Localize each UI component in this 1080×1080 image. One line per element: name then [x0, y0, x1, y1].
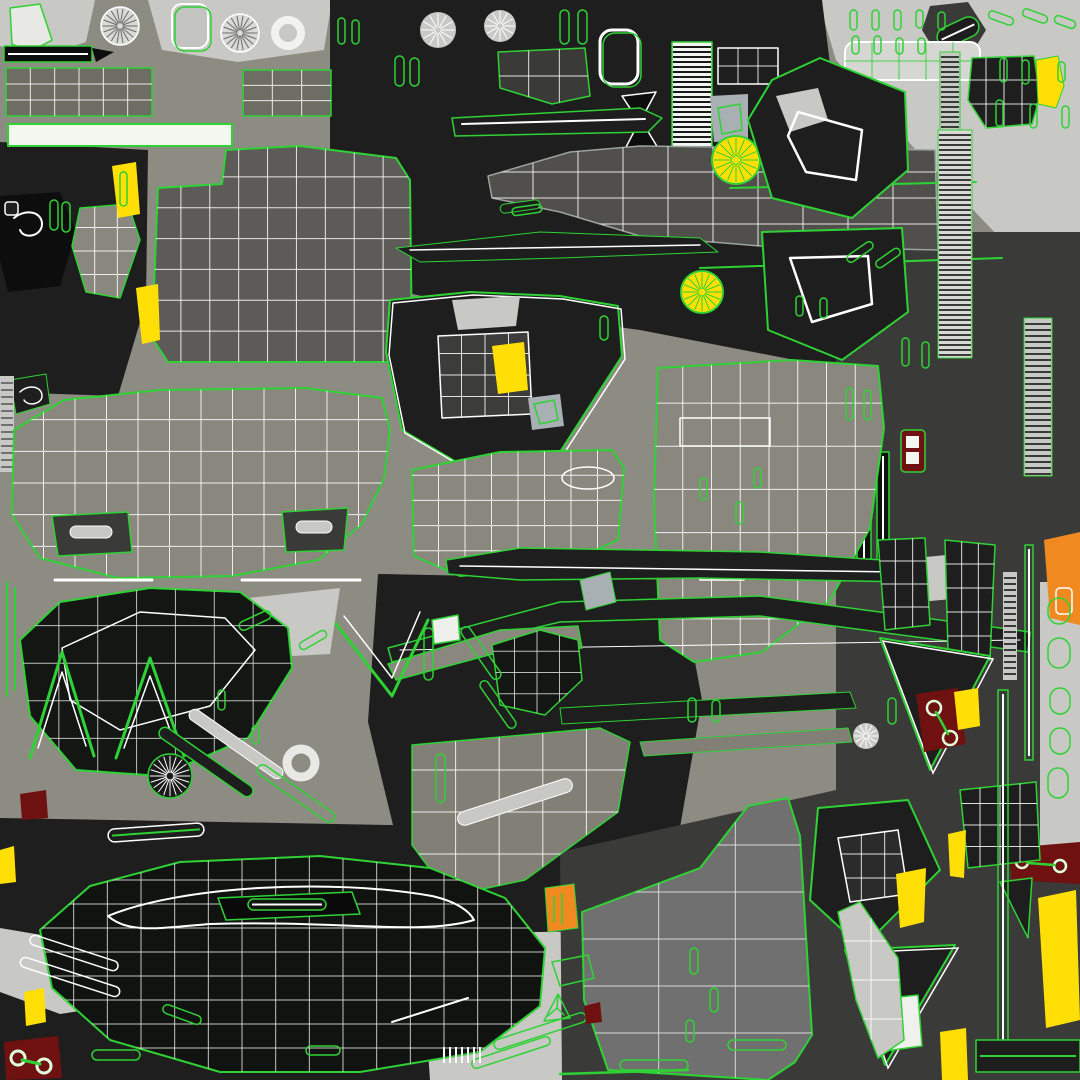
rounded-rect-island [172, 4, 211, 51]
pocket-pill-2 [296, 521, 332, 533]
uv-atlas-svg [0, 0, 1080, 1080]
red-window-2 [906, 452, 919, 464]
kite-grid-c [960, 782, 1040, 868]
lemon-disc-2 [681, 271, 723, 313]
ladder-right-big [938, 130, 972, 358]
ladder-left-edge [0, 376, 14, 472]
red-bone-corner [4, 1036, 62, 1080]
disc-kite [853, 723, 879, 749]
hood-island [40, 856, 545, 1072]
bumper-strip-2 [243, 70, 331, 116]
hood-slot-pill [248, 899, 326, 910]
gray-blob-window [452, 296, 520, 330]
yellow-small-br [948, 830, 966, 878]
starburst-blob-2 [484, 10, 516, 42]
uv-texture-atlas [0, 0, 1080, 1080]
starburst-blob-1 [420, 12, 456, 48]
white-blob-small [432, 615, 460, 644]
grid-quad-b [945, 540, 995, 660]
grid-quad-a [878, 538, 930, 630]
square-pill [5, 202, 18, 215]
yellow-blob-kite [954, 688, 980, 730]
bumper-strip-1 [6, 68, 152, 116]
panel-box-top [718, 48, 778, 84]
wheel-disc-1 [101, 7, 139, 45]
red-window-1 [906, 436, 919, 448]
wheel-disc-3 [148, 754, 192, 798]
yellow-blob-window [492, 342, 528, 394]
yellow-blob-d [896, 868, 926, 928]
bottom-bar-right [976, 1040, 1080, 1072]
ladder-br-1 [1003, 572, 1017, 680]
ladder-stripes [444, 1047, 480, 1063]
red-patch-left [20, 790, 48, 820]
wheel-disc-2 [221, 14, 259, 52]
socket-ring-island [600, 30, 641, 87]
bluegray-leaf-blob [528, 394, 564, 430]
white-bar-island [8, 124, 232, 146]
lemon-disc-1 [712, 136, 760, 184]
black-bar-island [4, 46, 92, 62]
yellow-sliver-left [0, 846, 16, 884]
bluegray-blob [710, 94, 748, 142]
yellow-blob-bl [24, 988, 46, 1026]
pocket-pill-1 [70, 526, 112, 538]
ladder-right-edge [1024, 318, 1052, 476]
yellow-bottom-br [940, 1028, 968, 1080]
